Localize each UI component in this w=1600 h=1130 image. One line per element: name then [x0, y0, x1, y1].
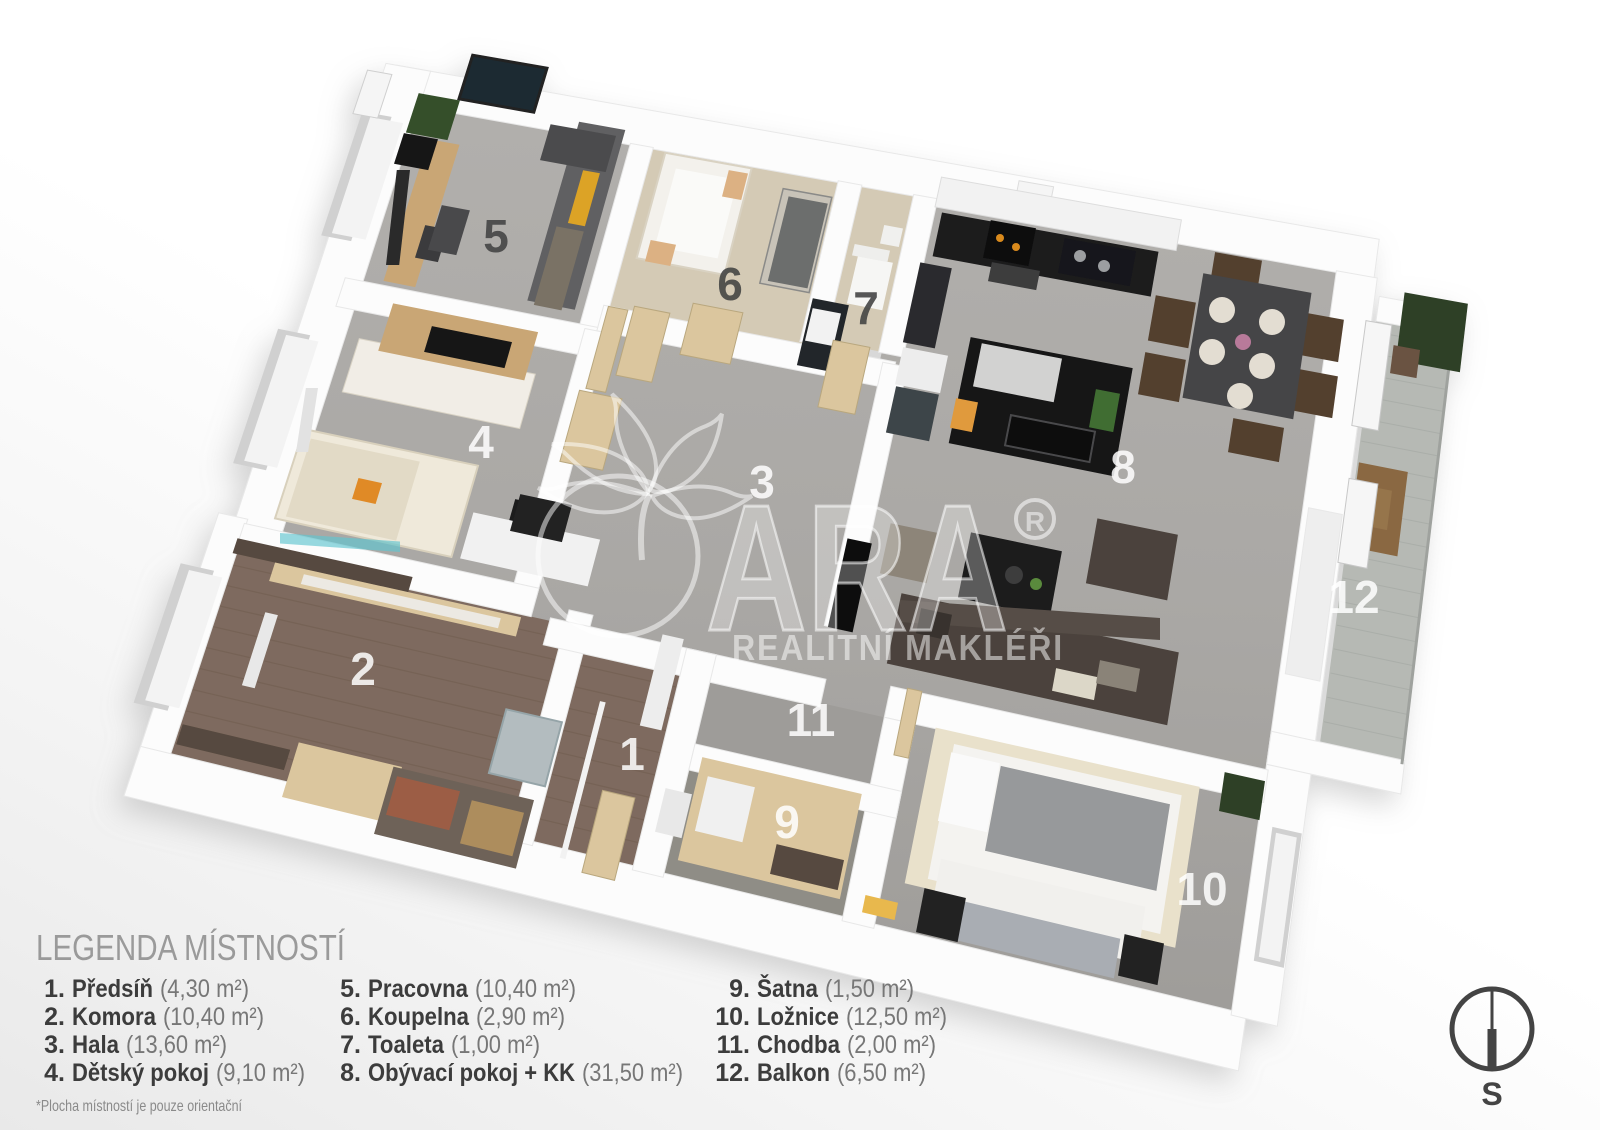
svg-text:9: 9	[774, 796, 800, 848]
svg-text:9.: 9.	[729, 975, 750, 1003]
svg-text:(31,50 m²): (31,50 m²)	[582, 1059, 683, 1087]
svg-text:3.: 3.	[44, 1031, 65, 1059]
svg-text:Chodba: Chodba	[757, 1031, 841, 1059]
svg-text:REALITNÍ MAKLÉŘI: REALITNÍ MAKLÉŘI	[732, 626, 1064, 668]
svg-text:LEGENDA MÍSTNOSTÍ: LEGENDA MÍSTNOSTÍ	[36, 927, 345, 968]
svg-text:Pracovna: Pracovna	[368, 975, 469, 1003]
svg-text:11: 11	[787, 694, 836, 746]
svg-text:Balkon: Balkon	[757, 1059, 830, 1087]
svg-text:S: S	[1481, 1076, 1502, 1112]
svg-text:Koupelna: Koupelna	[368, 1003, 470, 1031]
svg-text:11.: 11.	[717, 1031, 750, 1059]
svg-text:(4,30 m²): (4,30 m²)	[160, 975, 249, 1003]
svg-text:Obývací pokoj + KK: Obývací pokoj + KK	[368, 1059, 575, 1087]
svg-text:(6,50 m²): (6,50 m²)	[837, 1059, 926, 1087]
svg-text:1.: 1.	[44, 975, 65, 1003]
svg-text:(2,90 m²): (2,90 m²)	[476, 1003, 565, 1031]
svg-text:*Plocha místností je pouze ori: *Plocha místností je pouze orientační	[36, 1098, 242, 1115]
svg-text:(9,10 m²): (9,10 m²)	[216, 1059, 305, 1087]
svg-text:Toaleta: Toaleta	[368, 1031, 445, 1059]
svg-text:8.: 8.	[340, 1059, 361, 1087]
svg-text:10: 10	[1176, 863, 1227, 915]
svg-text:Komora: Komora	[72, 1003, 157, 1031]
svg-text:8: 8	[1110, 441, 1136, 493]
svg-text:12: 12	[1328, 571, 1379, 623]
svg-text:7.: 7.	[340, 1031, 361, 1059]
svg-text:6.: 6.	[340, 1003, 361, 1031]
svg-text:Šatna: Šatna	[757, 973, 819, 1003]
svg-text:4.: 4.	[44, 1059, 65, 1087]
svg-text:4: 4	[468, 416, 494, 468]
svg-text:5: 5	[483, 210, 509, 262]
svg-text:(10,40 m²): (10,40 m²)	[475, 975, 576, 1003]
svg-text:1: 1	[619, 728, 645, 780]
svg-text:Hala: Hala	[72, 1031, 120, 1059]
svg-text:(13,60 m²): (13,60 m²)	[126, 1031, 227, 1059]
svg-text:(1,50 m²): (1,50 m²)	[825, 975, 914, 1003]
svg-text:2: 2	[350, 643, 376, 695]
svg-text:Předsíň: Předsíň	[72, 975, 153, 1003]
svg-text:Dětský pokoj: Dětský pokoj	[72, 1059, 209, 1087]
svg-text:5.: 5.	[340, 975, 361, 1003]
svg-text:(12,50 m²): (12,50 m²)	[846, 1003, 947, 1031]
svg-text:(2,00 m²): (2,00 m²)	[847, 1031, 936, 1059]
svg-text:12.: 12.	[715, 1059, 750, 1087]
svg-text:(10,40 m²): (10,40 m²)	[163, 1003, 264, 1031]
svg-text:Ložnice: Ložnice	[757, 1003, 839, 1031]
svg-text:R: R	[1025, 506, 1045, 537]
svg-text:7: 7	[853, 282, 879, 334]
svg-text:10.: 10.	[715, 1003, 750, 1031]
svg-text:6: 6	[717, 258, 743, 310]
svg-text:(1,00 m²): (1,00 m²)	[451, 1031, 540, 1059]
svg-text:2.: 2.	[44, 1003, 65, 1031]
